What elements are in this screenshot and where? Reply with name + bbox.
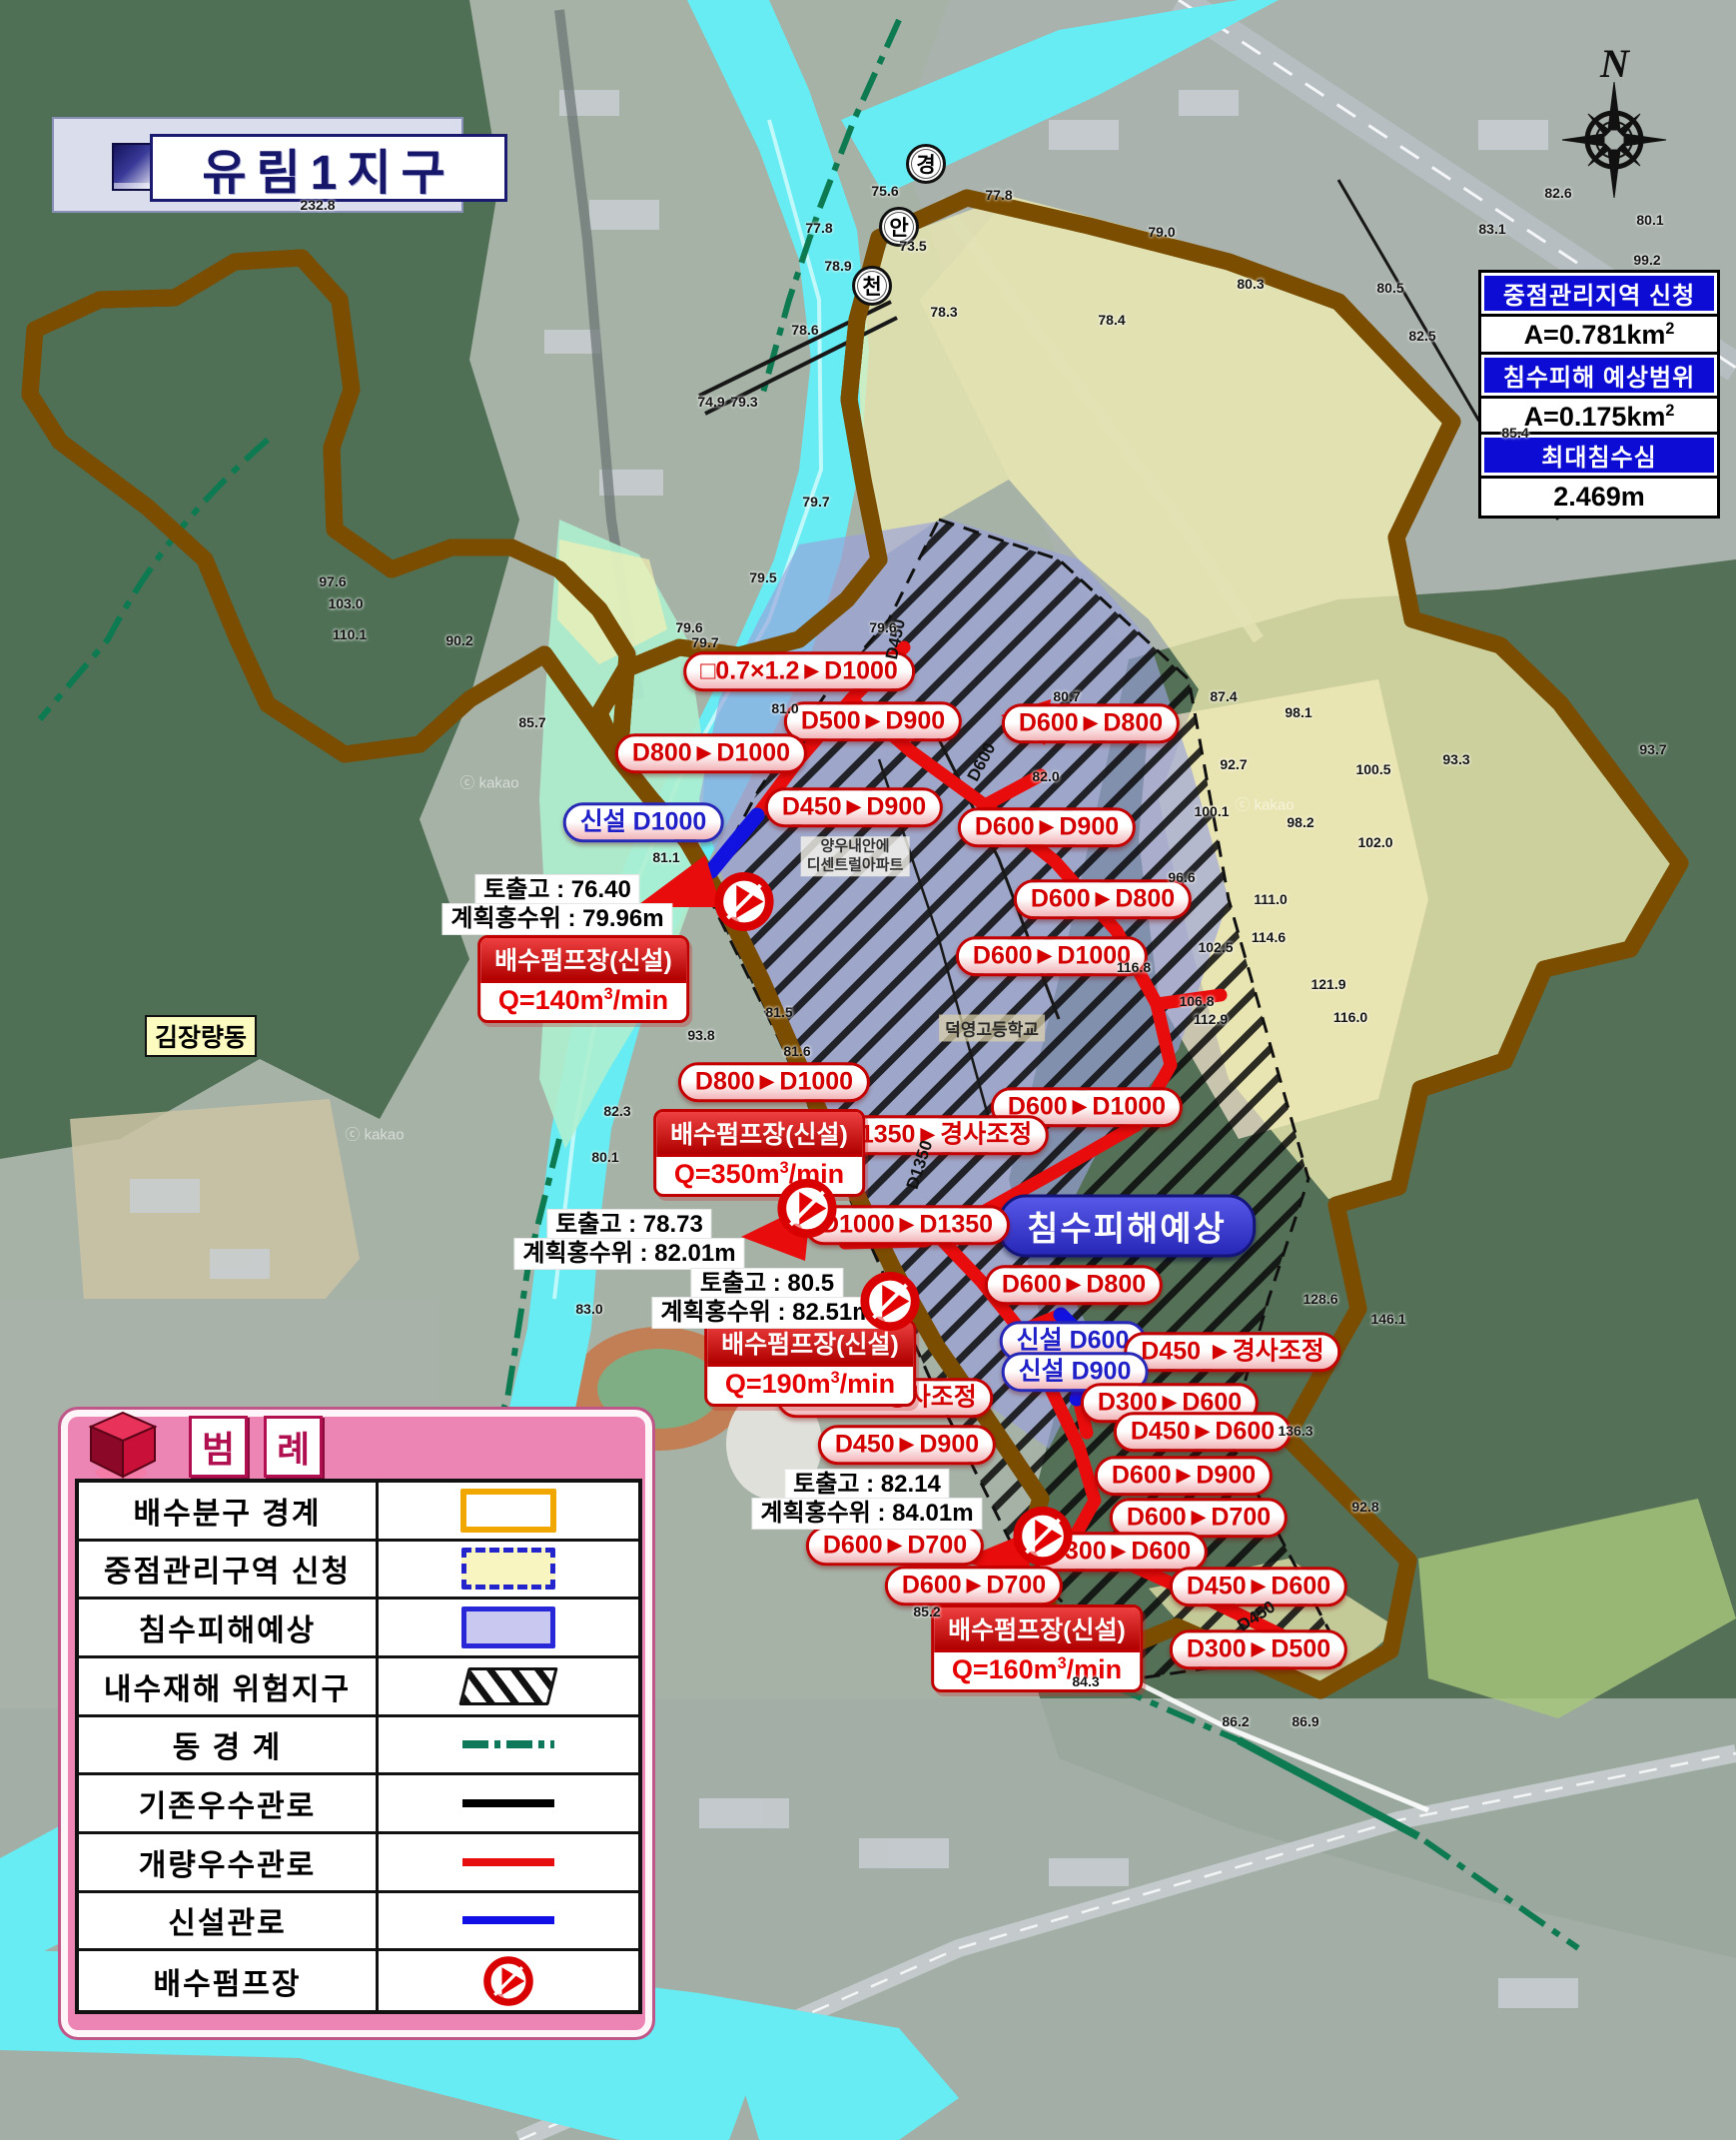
legend-symbol-flood-expected: [461, 1606, 555, 1648]
elevation-spot-value: 128.6: [1302, 1291, 1337, 1307]
pump-station-icon: [776, 1178, 838, 1240]
pump-station-marker: [859, 1271, 921, 1338]
elevation-spot-value: 82.6: [1544, 185, 1571, 201]
legend-row-label: 신설관로: [79, 1893, 379, 1949]
legend-header: 범 례: [77, 1416, 339, 1478]
pipe-upgrade-label: D600►D900: [958, 807, 1136, 847]
legend-symbol-basin-boundary: [460, 1489, 556, 1533]
legend-row-symbol: [379, 1600, 638, 1655]
elevation-spot-value: 75.6: [871, 183, 898, 199]
elevation-spot-value: 79.7: [691, 634, 718, 650]
elevation-spot-value: 112.9: [1194, 1011, 1228, 1027]
pipe-upgrade-label: D600►D700: [806, 1526, 984, 1566]
design-flood-level: 계획홍수위 : 79.96m: [442, 904, 671, 933]
elevation-spot-value: 79.5: [749, 569, 776, 585]
pump-capacity-value: Q=190m3/min: [707, 1367, 913, 1404]
legend-row-symbol: [379, 1717, 638, 1773]
legend-symbol-hazard-zone: [458, 1667, 557, 1705]
legend-row-symbol: [379, 1483, 638, 1539]
pump-station-box: 배수펌프장(신설)Q=160m3/min: [931, 1605, 1143, 1692]
pump-station-box: 배수펌프장(신설)Q=140m3/min: [477, 935, 689, 1023]
map-title-block: 유림1지구: [52, 117, 463, 213]
legend-symbol-improved-pipe: [462, 1858, 554, 1866]
elevation-spot-value: 82.5: [1408, 328, 1435, 344]
legend-row-label: 동 경 계: [79, 1717, 379, 1773]
elevation-spot-value: 77.8: [985, 187, 1012, 203]
elevation-spot-value: 84.3: [1072, 1673, 1099, 1689]
discharge-height: 토출고 : 80.5: [692, 1269, 842, 1298]
legend-row-label: 침수피해예상: [79, 1600, 379, 1655]
legend-table: 배수분구 경계중점관리구역 신청침수피해예상내수재해 위험지구동 경 계기존우수…: [75, 1479, 642, 2014]
pipe-upgrade-label: D450►D900: [818, 1425, 996, 1465]
elevation-spot-value: 100.5: [1355, 761, 1390, 777]
elevation-spot-value: 86.9: [1292, 1713, 1318, 1729]
design-flood-level: 계획홍수위 : 82.01m: [514, 1239, 743, 1268]
pipe-upgrade-label: □0.7×1.2►D1000: [683, 651, 915, 691]
pipe-upgrade-label: D300►D500: [1170, 1629, 1347, 1669]
legend-title-char: 범: [189, 1416, 248, 1478]
discharge-height: 토출고 : 76.40: [475, 875, 639, 904]
elevation-spot-value: 80.5: [1376, 280, 1403, 296]
pump-station-icon: [482, 1955, 534, 2007]
pump-station-marker: [776, 1178, 838, 1245]
pump-station-marker: [713, 871, 775, 938]
discharge-level-box: 토출고 : 82.14계획홍수위 : 84.01m: [752, 1470, 981, 1529]
page-title: 유림1지구: [202, 133, 454, 203]
elevation-spot-value: 78.3: [930, 304, 957, 320]
elevation-spot-value: 99.2: [1633, 252, 1660, 268]
elevation-spot-value: 86.2: [1222, 1713, 1249, 1729]
elevation-spot-value: 81.6: [783, 1043, 810, 1059]
river-name-badge: 경: [906, 144, 946, 184]
pump-station-header: 배수펌프장(신설): [480, 938, 686, 983]
legend-row-label: 배수분구 경계: [79, 1483, 379, 1539]
design-flood-level: 계획홍수위 : 82.51m: [652, 1298, 881, 1327]
legend-row: 기존우수관로: [79, 1775, 638, 1834]
legend-row: 동 경 계: [79, 1717, 638, 1776]
stat-value: 2.469m: [1478, 479, 1720, 519]
elevation-spot-value: 79.0: [1148, 224, 1175, 240]
pipe-upgrade-label: D450►D600: [1114, 1412, 1292, 1452]
elevation-spot-value: 114.6: [1252, 929, 1286, 945]
elevation-spot-value: 83.1: [1478, 221, 1505, 237]
map-annotation-overlay: 유림1지구 N 중점관리지역 신청 A=0.781km2 침수피해 예상범위 A…: [0, 0, 1736, 2140]
pipe-upgrade-label: D600►D800: [1014, 879, 1192, 919]
elevation-spot-value: 146.1: [1370, 1311, 1405, 1327]
pump-station-header: 배수펌프장(신설): [934, 1607, 1140, 1652]
pump-station-icon: [713, 871, 775, 933]
legend-row: 개량우수관로: [79, 1834, 638, 1893]
elevation-spot-value: 92.7: [1220, 756, 1247, 772]
school-label: 덕영고등학교: [939, 1015, 1045, 1042]
elevation-spot-value: 73.5: [899, 238, 926, 254]
legend-row: 배수분구 경계: [79, 1483, 638, 1542]
elevation-spot-value: 100.1: [1194, 803, 1229, 819]
legend-row-symbol: [379, 1893, 638, 1949]
elevation-spot-value: 82.3: [603, 1103, 630, 1119]
town-name-label: 김장량동: [145, 1015, 257, 1057]
legend-symbol-new-pipe: [462, 1916, 554, 1924]
elevation-spot-value: 81.0: [771, 700, 798, 716]
stat-header: 침수피해 예상범위: [1478, 352, 1720, 399]
pump-capacity-value: Q=160m3/min: [934, 1652, 1140, 1689]
elevation-spot-value: 232.8: [300, 197, 335, 213]
elevation-spot-value: 110.1: [333, 626, 367, 642]
legend-row: 침수피해예상: [79, 1600, 638, 1658]
flood-expected-label: 침수피해예상: [998, 1195, 1256, 1258]
elevation-spot-value: 87.4: [1210, 688, 1237, 704]
legend-row: 신설관로: [79, 1893, 638, 1952]
pipe-upgrade-label: D800►D1000: [678, 1062, 870, 1102]
pipe-upgrade-label: D500►D900: [784, 701, 962, 741]
legend-row-label: 내수재해 위험지구: [79, 1658, 379, 1714]
elevation-spot-value: 93.7: [1639, 741, 1666, 757]
elevation-spot-value: 85.7: [518, 714, 545, 730]
legend-row-symbol: [379, 1834, 638, 1890]
pipe-upgrade-label: D800►D1000: [615, 733, 807, 773]
elevation-spot-value: 98.1: [1285, 704, 1311, 720]
pipe-size-label: D600: [964, 739, 1001, 784]
elevation-spot-value: 102.5: [1198, 939, 1233, 955]
pipe-upgrade-label: D450►D600: [1170, 1567, 1347, 1606]
legend-row: 중점관리구역 신청: [79, 1542, 638, 1601]
elevation-spot-value: 121.9: [1310, 976, 1345, 992]
pipe-upgrade-label: D600►D900: [1095, 1456, 1273, 1496]
legend-title-char: 례: [264, 1416, 323, 1478]
legend-row-label: 배수펌프장: [79, 1951, 379, 2010]
map-watermark: ⓒ kakao: [1235, 794, 1294, 815]
elevation-spot-value: 90.2: [445, 632, 472, 648]
elevation-spot-value: 93.8: [687, 1027, 714, 1043]
elevation-spot-value: 80.1: [591, 1149, 618, 1165]
stat-box-management-area: 중점관리지역 신청 A=0.781km2: [1478, 270, 1720, 357]
elevation-spot-value: 78.9: [824, 258, 851, 274]
elevation-spot-value: 102.0: [1357, 834, 1392, 850]
elevation-spot-value: 116.8: [1117, 959, 1151, 975]
river-name-badge: 천: [852, 266, 892, 306]
legend-panel: 범 례 배수분구 경계중점관리구역 신청침수피해예상내수재해 위험지구동 경 계…: [58, 1407, 655, 2040]
discharge-height: 토출고 : 78.73: [547, 1210, 711, 1239]
compass-north-label: N: [1600, 40, 1629, 87]
legend-row-symbol: [379, 1951, 638, 2010]
pump-station-icon: [859, 1271, 921, 1333]
elevation-spot-value: 98.2: [1287, 814, 1313, 830]
discharge-height: 토출고 : 82.14: [785, 1470, 949, 1499]
elevation-spot-value: 79.3: [730, 394, 757, 410]
pump-station-marker: [1012, 1506, 1074, 1573]
legend-row-symbol: [379, 1658, 638, 1714]
elevation-spot-value: 93.3: [1442, 751, 1469, 767]
pump-station-icon: [1012, 1506, 1074, 1568]
elevation-spot-value: 81.5: [765, 1004, 792, 1020]
elevation-spot-value: 97.6: [319, 573, 346, 589]
elevation-spot-value: 79.6: [869, 619, 896, 635]
pipe-upgrade-label: D600►D800: [985, 1265, 1163, 1305]
elevation-spot-value: 80.3: [1237, 276, 1264, 292]
pipe-upgrade-label: D450 ►경사조정: [1124, 1332, 1340, 1372]
elevation-spot-value: 85.4: [1501, 425, 1528, 441]
design-flood-level: 계획홍수위 : 84.01m: [752, 1499, 981, 1528]
elevation-spot-value: 83.0: [575, 1301, 602, 1317]
stat-box-max-depth: 최대침수심 2.469m: [1478, 432, 1720, 519]
map-watermark: ⓒ kakao: [345, 1124, 404, 1145]
legend-row-label: 중점관리구역 신청: [79, 1542, 379, 1598]
legend-symbol-management-zone: [461, 1548, 555, 1590]
stat-header: 중점관리지역 신청: [1478, 270, 1720, 317]
map-watermark: ⓒ kakao: [459, 772, 518, 793]
elevation-spot-value: 82.0: [1032, 768, 1059, 784]
legend-row-symbol: [379, 1775, 638, 1831]
discharge-level-box: 토출고 : 78.73계획홍수위 : 82.01m: [514, 1210, 743, 1269]
pipe-upgrade-label: D600►D800: [1002, 703, 1180, 743]
legend-symbol-dong-boundary: [462, 1740, 554, 1748]
elevation-spot-value: 85.2: [913, 1604, 940, 1619]
elevation-spot-value: 77.8: [805, 220, 832, 236]
elevation-spot-value: 74.9: [697, 394, 724, 410]
compass-rose: N: [1576, 40, 1656, 200]
elevation-spot-value: 79.6: [675, 619, 702, 635]
legend-row-label: 기존우수관로: [79, 1775, 379, 1831]
legend-row: 내수재해 위험지구: [79, 1658, 638, 1717]
legend-row-label: 개량우수관로: [79, 1834, 379, 1890]
elevation-spot-value: 78.6: [791, 322, 818, 338]
stat-value: A=0.781km2: [1478, 317, 1720, 357]
elevation-spot-value: 92.8: [1351, 1499, 1378, 1515]
elevation-spot-value: 79.7: [802, 494, 829, 510]
elevation-spot-value: 96.6: [1168, 869, 1195, 885]
elevation-spot-value: 80.1: [1636, 212, 1663, 228]
elevation-spot-value: 78.4: [1098, 312, 1125, 328]
legend-cube-icon: [85, 1411, 163, 1483]
legend-symbol-existing-pipe: [462, 1799, 554, 1807]
pipe-upgrade-label: D450►D900: [765, 787, 943, 827]
elevation-spot-value: 103.0: [328, 595, 363, 611]
title-box: 유림1지구: [150, 134, 507, 202]
discharge-level-box: 토출고 : 80.5계획홍수위 : 82.51m: [652, 1269, 881, 1328]
pump-capacity-value: Q=140m3/min: [480, 983, 686, 1020]
elevation-spot-value: 136.3: [1278, 1423, 1312, 1439]
discharge-level-box: 토출고 : 76.40계획홍수위 : 79.96m: [442, 875, 671, 934]
elevation-spot-value: 81.1: [652, 849, 679, 865]
legend-row: 배수펌프장: [79, 1951, 638, 2010]
new-pipe-label: 신설 D1000: [563, 802, 724, 842]
elevation-spot-value: 111.0: [1254, 891, 1288, 907]
elevation-spot-value: 106.8: [1179, 993, 1214, 1009]
pump-station-header: 배수펌프장(신설): [656, 1112, 862, 1157]
elevation-spot-value: 80.7: [1053, 688, 1080, 704]
apartment-label: 양우내안에디센트럴아파트: [801, 836, 910, 876]
elevation-spot-value: 116.0: [1333, 1009, 1367, 1025]
legend-row-symbol: [379, 1542, 638, 1598]
